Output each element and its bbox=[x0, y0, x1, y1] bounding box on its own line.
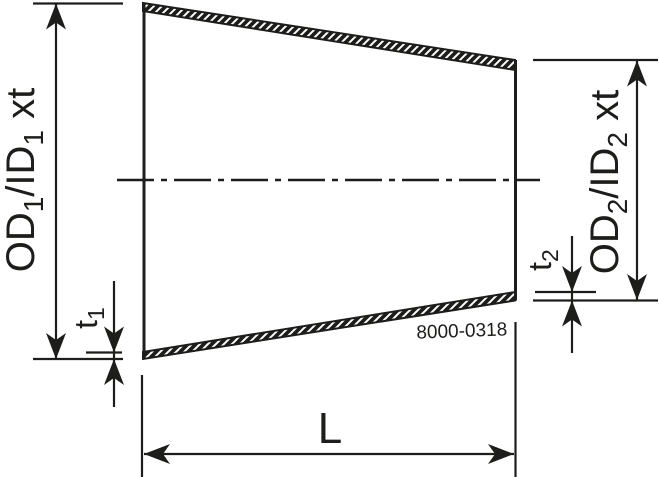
t2-label: t2 bbox=[522, 249, 563, 271]
technical-drawing-canvas: OD1/ID1 xt t1 OD2/ID2 xt t2 L 8000-0318 bbox=[0, 0, 659, 477]
od1-dimension: OD1/ID1 xt bbox=[0, 4, 123, 360]
od2-label-part: OD bbox=[583, 214, 627, 274]
part-number: 8000-0318 bbox=[416, 319, 508, 343]
od1-label-subscript: 1 bbox=[18, 130, 49, 146]
t1-label: t1 bbox=[68, 307, 109, 329]
reducer-body bbox=[117, 3, 540, 359]
od2-label-part: xt bbox=[583, 90, 627, 132]
reducer-drawing: OD1/ID1 xt t1 OD2/ID2 xt t2 L 8000-0318 bbox=[0, 0, 659, 477]
od1-label-part: xt bbox=[0, 88, 43, 130]
od1-label-part: OD bbox=[0, 212, 43, 272]
od1-label-part: /ID bbox=[0, 146, 43, 197]
od1-label: OD1/ID1 xt bbox=[0, 88, 49, 273]
t1-label-subscript: 1 bbox=[83, 307, 109, 320]
t2-label-part: t bbox=[522, 262, 558, 271]
t2-label-subscript: 2 bbox=[537, 249, 563, 262]
od1-label-subscript: 1 bbox=[18, 197, 49, 213]
t1-dimension: t1 bbox=[68, 281, 124, 407]
length-label: L bbox=[318, 404, 342, 453]
od2-label: OD2/ID2 xt bbox=[583, 90, 633, 275]
od2-label-subscript: 2 bbox=[602, 199, 633, 215]
t1-label-part: t bbox=[68, 320, 104, 329]
od2-label-part: /ID bbox=[583, 148, 627, 199]
top-wall-hatched bbox=[143, 3, 515, 70]
od2-label-subscript: 2 bbox=[602, 132, 633, 148]
